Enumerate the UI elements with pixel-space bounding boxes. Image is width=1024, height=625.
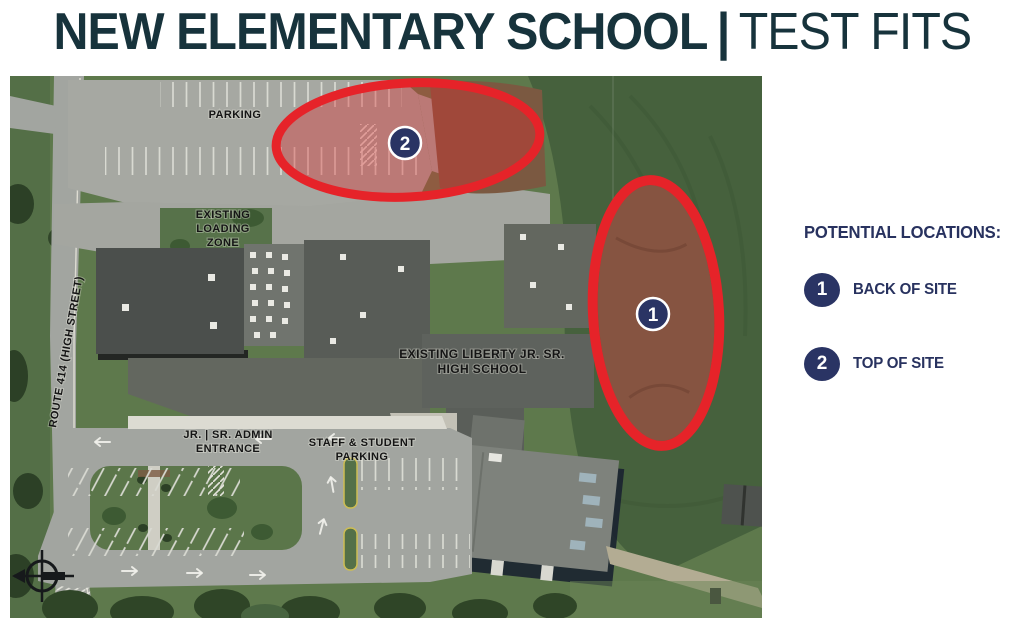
svg-text:JR. | SR. ADMIN: JR. | SR. ADMIN bbox=[183, 429, 272, 441]
marker-2-number: 2 bbox=[400, 134, 411, 155]
aerial-map-svg: 2 1 PARKING EXISTING LOADING ZONE EXISTI… bbox=[10, 76, 762, 618]
page-title: NEW ELEMENTARY SCHOOL|TEST FITS bbox=[0, 6, 1024, 58]
outbuilding bbox=[721, 484, 762, 527]
legend: POTENTIAL LOCATIONS: 1 BACK OF SITE 2 TO… bbox=[804, 222, 1022, 421]
staff-parking-stripes-2 bbox=[360, 534, 470, 568]
legend-item-top-of-site: 2 TOP OF SITE bbox=[804, 347, 1022, 381]
map-marker-1: 1 bbox=[637, 298, 669, 330]
title-main: NEW ELEMENTARY SCHOOL bbox=[53, 3, 707, 61]
aerial-site-map: 2 1 PARKING EXISTING LOADING ZONE EXISTI… bbox=[10, 76, 762, 618]
svg-text:HIGH SCHOOL: HIGH SCHOOL bbox=[437, 362, 526, 376]
svg-text:PARKING: PARKING bbox=[336, 451, 389, 463]
svg-text:STAFF & STUDENT: STAFF & STUDENT bbox=[309, 437, 416, 449]
svg-text:ZONE: ZONE bbox=[207, 237, 239, 249]
title-sub: TEST FITS bbox=[738, 3, 971, 61]
svg-text:LOADING: LOADING bbox=[196, 223, 250, 235]
lower-hatch-island bbox=[208, 466, 224, 496]
roof-west-block bbox=[96, 248, 244, 354]
legend-badge-2: 2 bbox=[804, 347, 840, 381]
svg-text:ENTRANCE: ENTRANCE bbox=[196, 443, 260, 455]
roof-east-block bbox=[304, 240, 430, 358]
legend-badge-1: 1 bbox=[804, 273, 840, 307]
map-marker-2: 2 bbox=[389, 127, 421, 159]
marker-1-number: 1 bbox=[648, 305, 659, 326]
title-separator: | bbox=[707, 3, 738, 61]
lower-stripes-row2 bbox=[68, 528, 244, 556]
roof-northeast-block bbox=[504, 224, 596, 328]
slide: NEW ELEMENTARY SCHOOL|TEST FITS bbox=[0, 0, 1024, 625]
legend-label-2: TOP OF SITE bbox=[853, 355, 944, 373]
label-parking: PARKING bbox=[209, 109, 262, 121]
legend-label-1: BACK OF SITE bbox=[853, 281, 957, 299]
legend-item-back-of-site: 1 BACK OF SITE bbox=[804, 273, 1022, 307]
svg-text:EXISTING: EXISTING bbox=[196, 209, 251, 221]
grass-light-patch bbox=[570, 581, 762, 618]
front-sidewalk bbox=[128, 416, 447, 429]
roof-center-band bbox=[244, 244, 304, 346]
west-verge bbox=[10, 76, 50, 618]
svg-text:EXISTING LIBERTY JR. SR.: EXISTING LIBERTY JR. SR. bbox=[399, 347, 564, 361]
legend-heading: POTENTIAL LOCATIONS: bbox=[804, 222, 1011, 243]
